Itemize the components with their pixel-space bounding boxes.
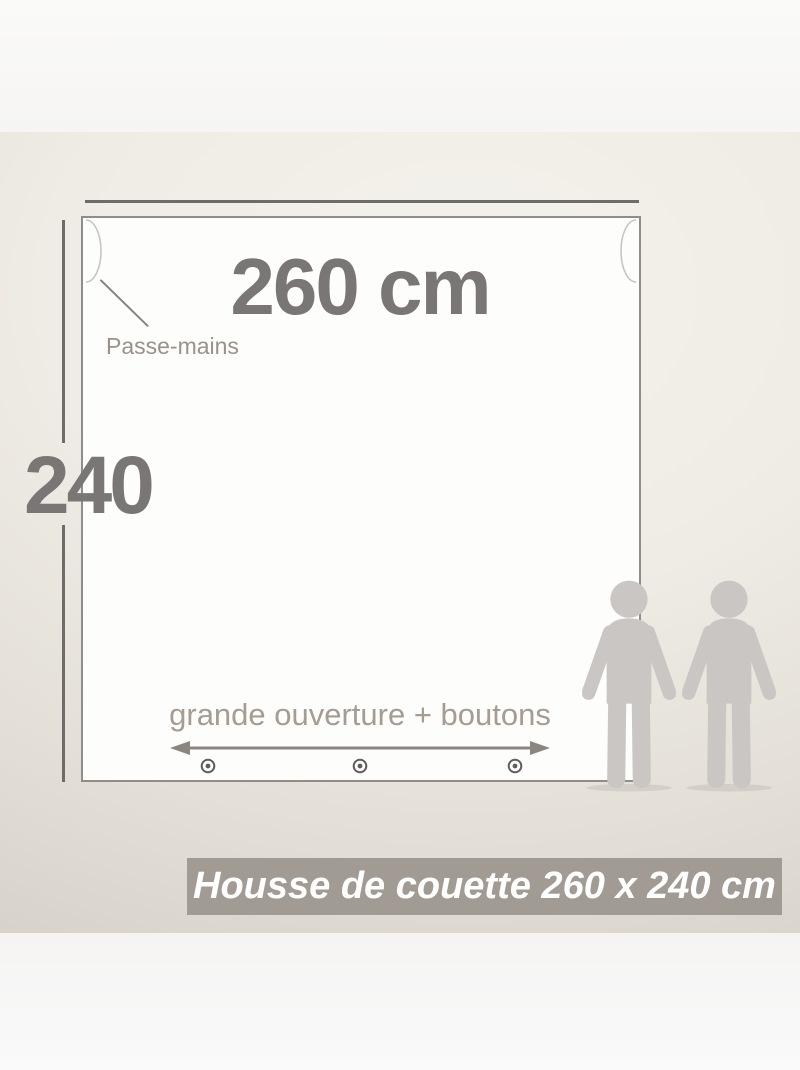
height-dimension-line-upper	[62, 220, 65, 443]
double-arrow-icon	[170, 739, 550, 757]
button-icon	[199, 757, 217, 775]
width-dimension-line	[85, 200, 639, 203]
hand-slot-left-icon	[86, 220, 101, 282]
opening-label: grande ouverture + boutons	[165, 697, 555, 733]
width-dimension-label: 260 cm	[160, 243, 560, 331]
hand-slot-right-icon	[621, 220, 636, 282]
person-icon	[682, 579, 776, 792]
top-margin-band	[0, 0, 800, 132]
person-icon	[582, 579, 676, 792]
bottom-margin-band	[0, 933, 800, 1070]
height-dimension-line-lower	[62, 525, 65, 782]
product-diagram: 260 cm 240 Passe-mains grande ouverture …	[0, 0, 800, 1070]
hand-slot-label: Passe-mains	[106, 333, 239, 360]
caption-banner: Housse de couette 260 x 240 cm	[187, 858, 782, 915]
button-icon	[506, 757, 524, 775]
button-icon	[351, 757, 369, 775]
caption-label: Housse de couette 260 x 240 cm	[193, 865, 776, 908]
height-dimension-label: 240	[24, 441, 152, 531]
